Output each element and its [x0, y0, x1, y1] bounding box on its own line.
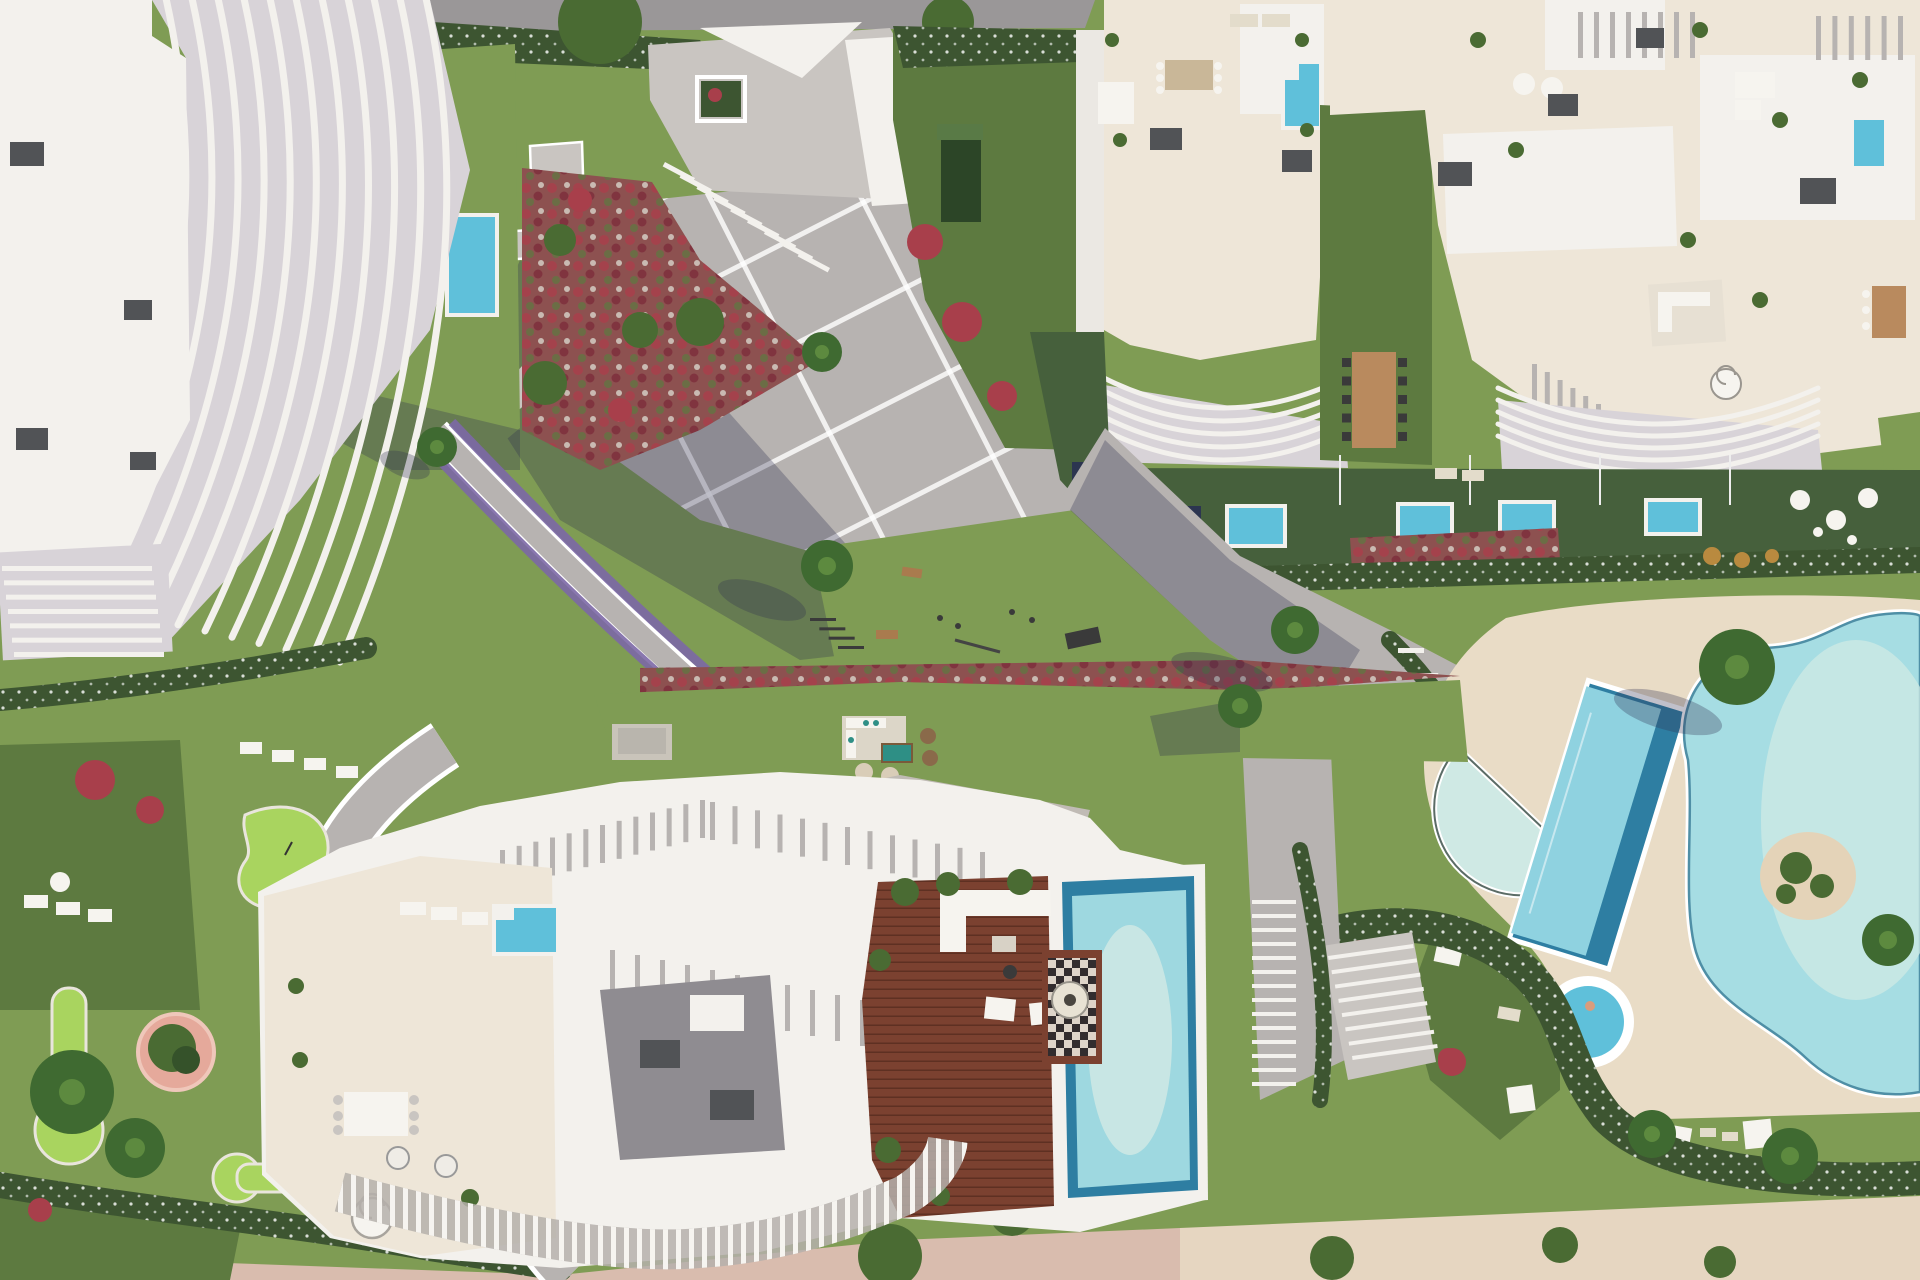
- round-chair: [1513, 73, 1535, 95]
- communal-dining-table: [1352, 352, 1396, 448]
- deck-chair: [984, 996, 1016, 1021]
- fire-pit: [1003, 965, 1017, 979]
- south-building: [258, 772, 1208, 1268]
- round-umbrella: [1826, 510, 1846, 530]
- roof-unit: [1150, 128, 1182, 150]
- round-chair: [435, 1155, 457, 1177]
- round-umbrella: [1790, 490, 1810, 510]
- round-umbrella: [1858, 488, 1878, 508]
- bather: [1585, 1001, 1595, 1011]
- palm: [1762, 1128, 1818, 1184]
- roof-unit: [1438, 162, 1472, 186]
- palm: [1862, 914, 1914, 966]
- roof-unit: [16, 428, 48, 450]
- promenade-tree: [1704, 1246, 1736, 1278]
- rooftop-sofa: [1098, 82, 1134, 124]
- private-plunge-pool: [1227, 506, 1285, 546]
- rooftop-plunge-pool: [1852, 118, 1886, 168]
- sun-lounger: [56, 902, 80, 915]
- wicker-chair: [920, 728, 936, 744]
- masterplan-canvas: [0, 0, 1920, 1280]
- palm: [1628, 1110, 1676, 1158]
- garden-shed: [941, 130, 981, 222]
- roof-unit: [1636, 28, 1664, 48]
- coffee-table: [992, 936, 1016, 952]
- game-table: [882, 744, 912, 762]
- aerial-render: [0, 0, 1920, 1280]
- palm: [802, 332, 842, 372]
- roof-unit: [1548, 94, 1578, 116]
- green-alley: [1320, 105, 1432, 465]
- round-chair: [387, 1147, 409, 1169]
- gym-bench: [876, 630, 898, 639]
- round-umbrella: [50, 872, 70, 892]
- sun-lounger: [1262, 14, 1290, 27]
- roof-unit: [130, 452, 156, 470]
- roof-unit: [1282, 150, 1312, 172]
- terrace-dining-table: [344, 1092, 408, 1136]
- garden-sofa: [618, 728, 666, 754]
- rooftop-dining-table: [1872, 286, 1906, 338]
- palm: [1218, 684, 1262, 728]
- sun-lounger: [1230, 14, 1258, 27]
- sun-lounger: [88, 909, 112, 922]
- roof-unit: [124, 300, 152, 320]
- promenade-tree: [1542, 1227, 1578, 1263]
- wicker-chair: [922, 750, 938, 766]
- rooftop-sofa: [1735, 72, 1775, 98]
- roof-unit: [1800, 178, 1836, 204]
- rooftop-dining-table: [1165, 60, 1213, 90]
- roof-unit: [640, 1040, 680, 1068]
- sun-lounger: [24, 895, 48, 908]
- promenade-tree: [1310, 1236, 1354, 1280]
- square-parasol: [1506, 1084, 1535, 1113]
- roof-unit: [710, 1090, 754, 1120]
- roof-unit: [10, 142, 44, 166]
- private-plunge-pool: [1646, 500, 1700, 534]
